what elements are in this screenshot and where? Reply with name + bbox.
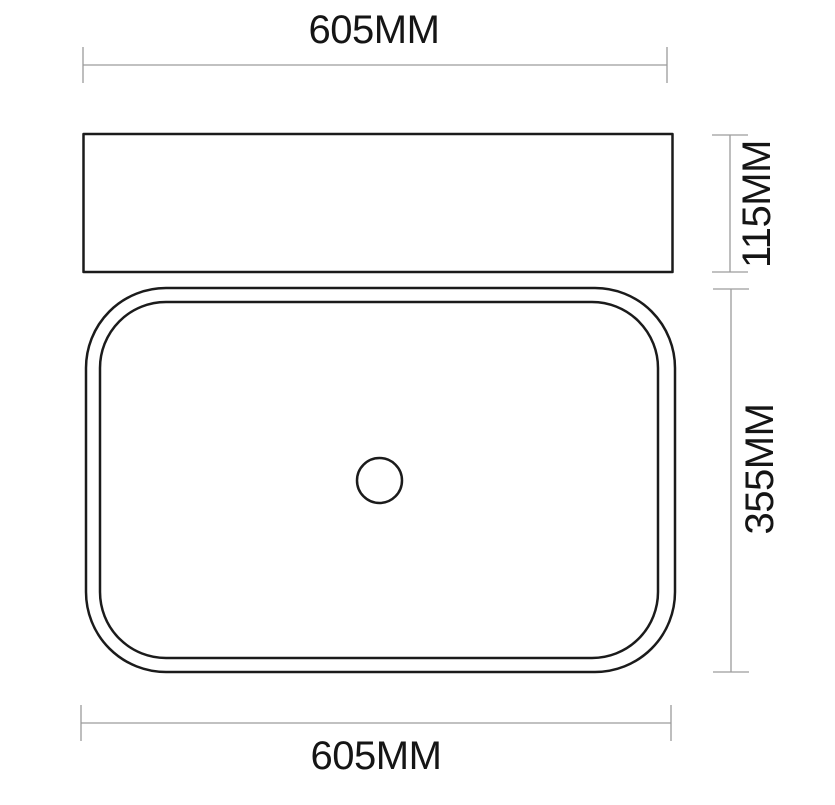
basin-side-view-outline: [84, 134, 673, 272]
dimension-lines-group: [81, 47, 749, 741]
basin-plan-outer-rim: [86, 288, 675, 672]
drawing-sheet: 605MM 115MM 355MM 605MM: [0, 0, 835, 805]
technical-drawing-canvas: [0, 0, 835, 805]
basin-outlines-group: [84, 134, 676, 672]
drain-hole: [357, 458, 402, 503]
plan-depth-label: 355MM: [737, 359, 783, 579]
side-height-label: 115MM: [734, 94, 780, 314]
basin-plan-inner-bowl: [100, 302, 658, 658]
bottom-width-label: 605MM: [226, 733, 526, 779]
top-width-label: 605MM: [224, 7, 524, 53]
